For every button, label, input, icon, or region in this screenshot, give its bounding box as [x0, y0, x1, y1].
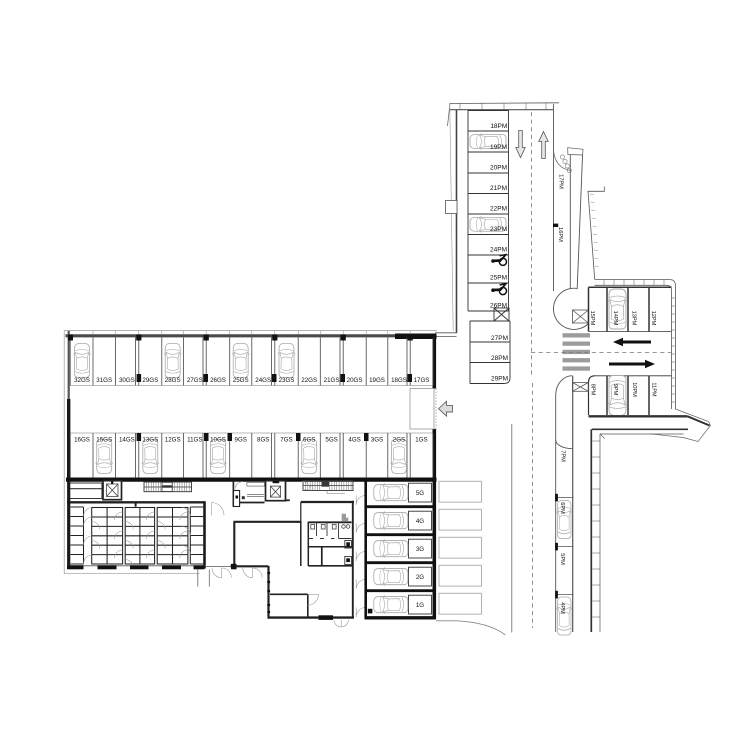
svg-text:24GS: 24GS — [255, 377, 271, 384]
svg-text:23PM: 23PM — [490, 226, 507, 233]
svg-text:29PM: 29PM — [491, 376, 508, 383]
svg-text:25GS: 25GS — [233, 377, 249, 384]
svg-text:7PM: 7PM — [559, 450, 565, 462]
svg-text:8GS: 8GS — [257, 437, 269, 444]
svg-text:9PM: 9PM — [612, 384, 618, 396]
svg-text:2G: 2G — [416, 574, 424, 581]
svg-text:26PM: 26PM — [490, 303, 507, 310]
svg-text:18PM: 18PM — [490, 123, 507, 130]
svg-text:4PM: 4PM — [559, 602, 565, 614]
svg-text:12GS: 12GS — [165, 437, 181, 444]
svg-text:1G: 1G — [416, 602, 424, 609]
svg-text:30GS: 30GS — [119, 377, 135, 384]
svg-text:13GS: 13GS — [142, 437, 158, 444]
svg-text:6PM: 6PM — [559, 502, 565, 514]
svg-text:32GS: 32GS — [74, 377, 90, 384]
svg-text:4G: 4G — [416, 518, 424, 525]
svg-text:21GS: 21GS — [324, 377, 340, 384]
svg-text:17PM: 17PM — [558, 174, 564, 189]
svg-text:8PM: 8PM — [590, 384, 596, 396]
svg-text:11GS: 11GS — [187, 437, 202, 444]
svg-text:3G: 3G — [416, 546, 424, 553]
svg-text:27PM: 27PM — [491, 335, 508, 342]
svg-text:10PM: 10PM — [631, 382, 637, 397]
svg-text:10GS: 10GS — [210, 437, 226, 444]
svg-text:3GS: 3GS — [371, 437, 383, 444]
svg-text:6GS: 6GS — [303, 437, 315, 444]
svg-text:16PM: 16PM — [557, 227, 563, 242]
svg-text:25PM: 25PM — [490, 275, 507, 282]
svg-text:5G: 5G — [416, 490, 424, 497]
svg-text:15GS: 15GS — [96, 437, 112, 444]
svg-text:18GS: 18GS — [391, 377, 407, 384]
svg-text:19GS: 19GS — [369, 377, 385, 384]
svg-text:29GS: 29GS — [142, 377, 158, 384]
svg-text:26GS: 26GS — [210, 377, 226, 384]
svg-text:4GS: 4GS — [348, 437, 360, 444]
svg-text:20GS: 20GS — [347, 377, 363, 384]
svg-text:7GS: 7GS — [280, 437, 292, 444]
svg-text:12PM: 12PM — [650, 311, 656, 326]
svg-text:5GS: 5GS — [325, 437, 337, 444]
svg-text:17GS: 17GS — [414, 377, 430, 384]
svg-text:21PM: 21PM — [490, 185, 507, 192]
svg-text:14GS: 14GS — [119, 437, 135, 444]
svg-text:15PM: 15PM — [589, 311, 595, 326]
svg-text:20PM: 20PM — [490, 165, 507, 172]
svg-text:24PM: 24PM — [490, 247, 507, 254]
svg-text:1GS: 1GS — [415, 437, 427, 444]
svg-text:28PM: 28PM — [491, 355, 508, 362]
svg-text:19PM: 19PM — [490, 144, 507, 151]
svg-text:27GS: 27GS — [187, 377, 203, 384]
svg-text:9GS: 9GS — [235, 437, 247, 444]
svg-text:14PM: 14PM — [612, 311, 618, 326]
svg-text:22GS: 22GS — [301, 377, 317, 384]
svg-text:5PM: 5PM — [559, 553, 565, 565]
svg-text:31GS: 31GS — [96, 377, 112, 384]
svg-text:22PM: 22PM — [490, 206, 507, 213]
svg-text:2GS: 2GS — [393, 437, 405, 444]
svg-text:16GS: 16GS — [74, 437, 90, 444]
svg-text:11PM: 11PM — [651, 382, 657, 397]
svg-text:23GS: 23GS — [279, 377, 295, 384]
svg-text:13PM: 13PM — [630, 311, 636, 326]
svg-text:28GS: 28GS — [165, 377, 181, 384]
